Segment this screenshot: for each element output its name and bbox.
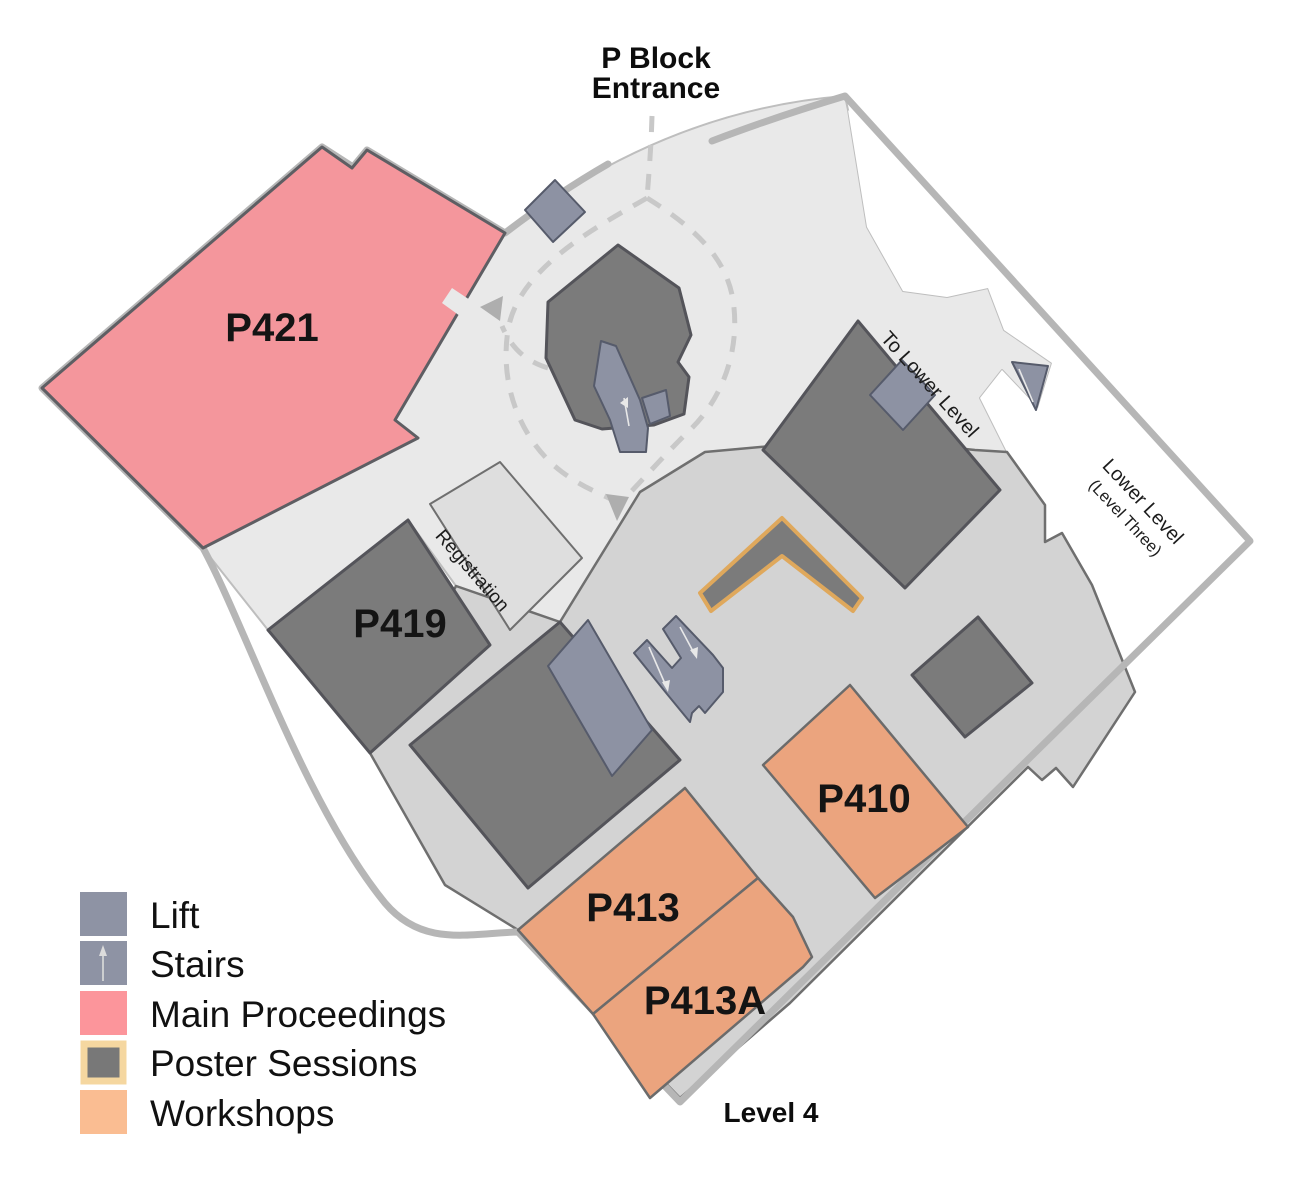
entrance-title-line1: P Block (601, 42, 711, 75)
floor-plan-page: P Block Entrance P421 P419 P410 P413 P41… (0, 0, 1293, 1188)
legend-stairs-label: Stairs (150, 944, 245, 985)
room-p410-label: P410 (817, 777, 910, 821)
main-proceedings-swatch-icon (80, 991, 127, 1035)
legend: Lift Stairs Main Proceedings Poster Sess… (80, 892, 446, 1134)
lift-swatch-icon (80, 892, 127, 936)
room-p421-label: P421 (225, 306, 318, 350)
legend-poster-sessions-label: Poster Sessions (150, 1043, 417, 1084)
poster-sessions-swatch-icon (84, 1044, 123, 1081)
legend-workshops-label: Workshops (150, 1093, 334, 1134)
legend-row-stairs: Stairs (80, 941, 245, 985)
legend-row-main-proceedings: Main Proceedings (80, 991, 446, 1035)
room-p419-label: P419 (353, 602, 446, 646)
legend-main-proceedings-label: Main Proceedings (150, 994, 446, 1035)
level-4-label: Level 4 (724, 1097, 819, 1128)
room-p413a-label: P413A (644, 979, 766, 1023)
legend-row-poster-sessions: Poster Sessions (84, 1043, 417, 1084)
entrance-title-line2: Entrance (592, 72, 720, 105)
floor-plan-map: P Block Entrance P421 P419 P410 P413 P41… (0, 0, 1293, 1188)
legend-row-lift: Lift (80, 892, 200, 936)
legend-row-workshops: Workshops (80, 1090, 334, 1134)
legend-lift-label: Lift (150, 895, 200, 936)
workshops-swatch-icon (80, 1090, 127, 1134)
room-p413-label: P413 (586, 886, 679, 930)
